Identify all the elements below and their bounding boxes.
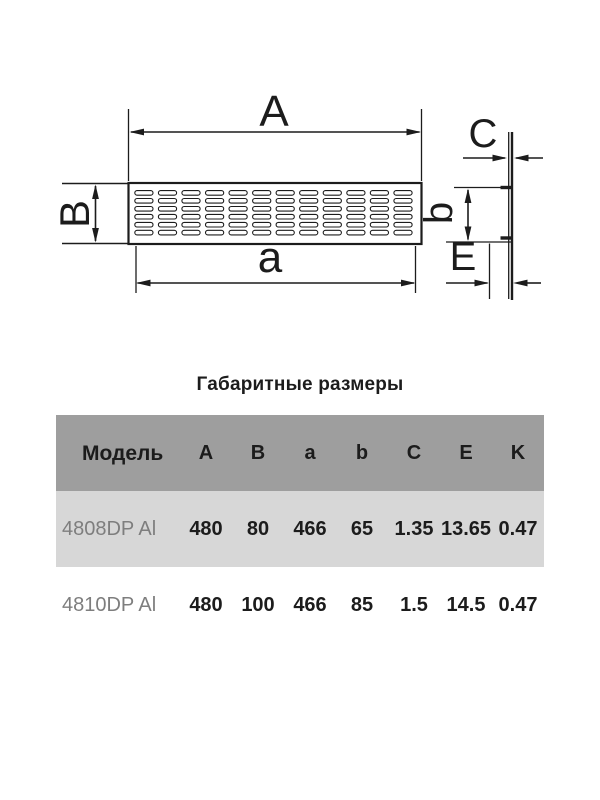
value-cell-a: 466 bbox=[284, 519, 336, 539]
value-cell-B: 80 bbox=[232, 519, 284, 539]
column-header-A: A bbox=[180, 443, 232, 463]
table-row: 4808DP Al 480 80 466 65 1.35 13.65 0.47 bbox=[56, 491, 544, 567]
dimension-b: b bbox=[417, 189, 471, 242]
column-header-C: C bbox=[388, 443, 440, 463]
product-sheet: A B a bbox=[0, 0, 600, 800]
dimension-B: B bbox=[51, 185, 99, 243]
value-cell-K: 0.47 bbox=[492, 519, 544, 539]
column-header-model: Модель bbox=[56, 443, 180, 464]
value-cell-a: 466 bbox=[284, 595, 336, 615]
dim-label-A: A bbox=[259, 87, 289, 136]
model-cell: 4810DP Al bbox=[56, 595, 180, 615]
dimension-E: E bbox=[446, 235, 541, 286]
dim-label-B: B bbox=[51, 200, 98, 228]
column-header-a: a bbox=[284, 443, 336, 463]
value-cell-E: 13.65 bbox=[440, 519, 492, 539]
dim-label-b: b bbox=[417, 202, 461, 224]
value-cell-b: 85 bbox=[336, 595, 388, 615]
table-title: Габаритные размеры bbox=[0, 374, 600, 396]
value-cell-C: 1.35 bbox=[388, 519, 440, 539]
value-cell-A: 480 bbox=[180, 519, 232, 539]
value-cell-B: 100 bbox=[232, 595, 284, 615]
model-cell: 4808DP Al bbox=[56, 519, 180, 539]
grille-front-view: A B a bbox=[51, 87, 422, 293]
dimension-C: C bbox=[463, 112, 543, 161]
bottom-flange bbox=[501, 236, 513, 239]
dim-label-a: a bbox=[258, 233, 283, 282]
column-header-K: K bbox=[492, 443, 544, 463]
dim-label-E: E bbox=[450, 235, 477, 279]
table-row: 4810DP Al 480 100 466 85 1.5 14.5 0.47 bbox=[56, 567, 544, 643]
value-cell-C: 1.5 bbox=[388, 595, 440, 615]
column-header-E: E bbox=[440, 443, 492, 463]
grille-side-view: C b E bbox=[417, 112, 543, 300]
spec-table: Модель A B a b C E K 4808DP Al 480 80 46… bbox=[56, 415, 544, 643]
value-cell-b: 65 bbox=[336, 519, 388, 539]
value-cell-A: 480 bbox=[180, 595, 232, 615]
dimensional-drawing: A B a bbox=[0, 0, 600, 340]
column-header-b: b bbox=[336, 443, 388, 463]
column-header-B: B bbox=[232, 443, 284, 463]
dimension-A: A bbox=[129, 87, 422, 181]
dim-label-C: C bbox=[469, 112, 498, 156]
table-header-row: Модель A B a b C E K bbox=[56, 415, 544, 491]
value-cell-K: 0.47 bbox=[492, 595, 544, 615]
value-cell-E: 14.5 bbox=[440, 595, 492, 615]
